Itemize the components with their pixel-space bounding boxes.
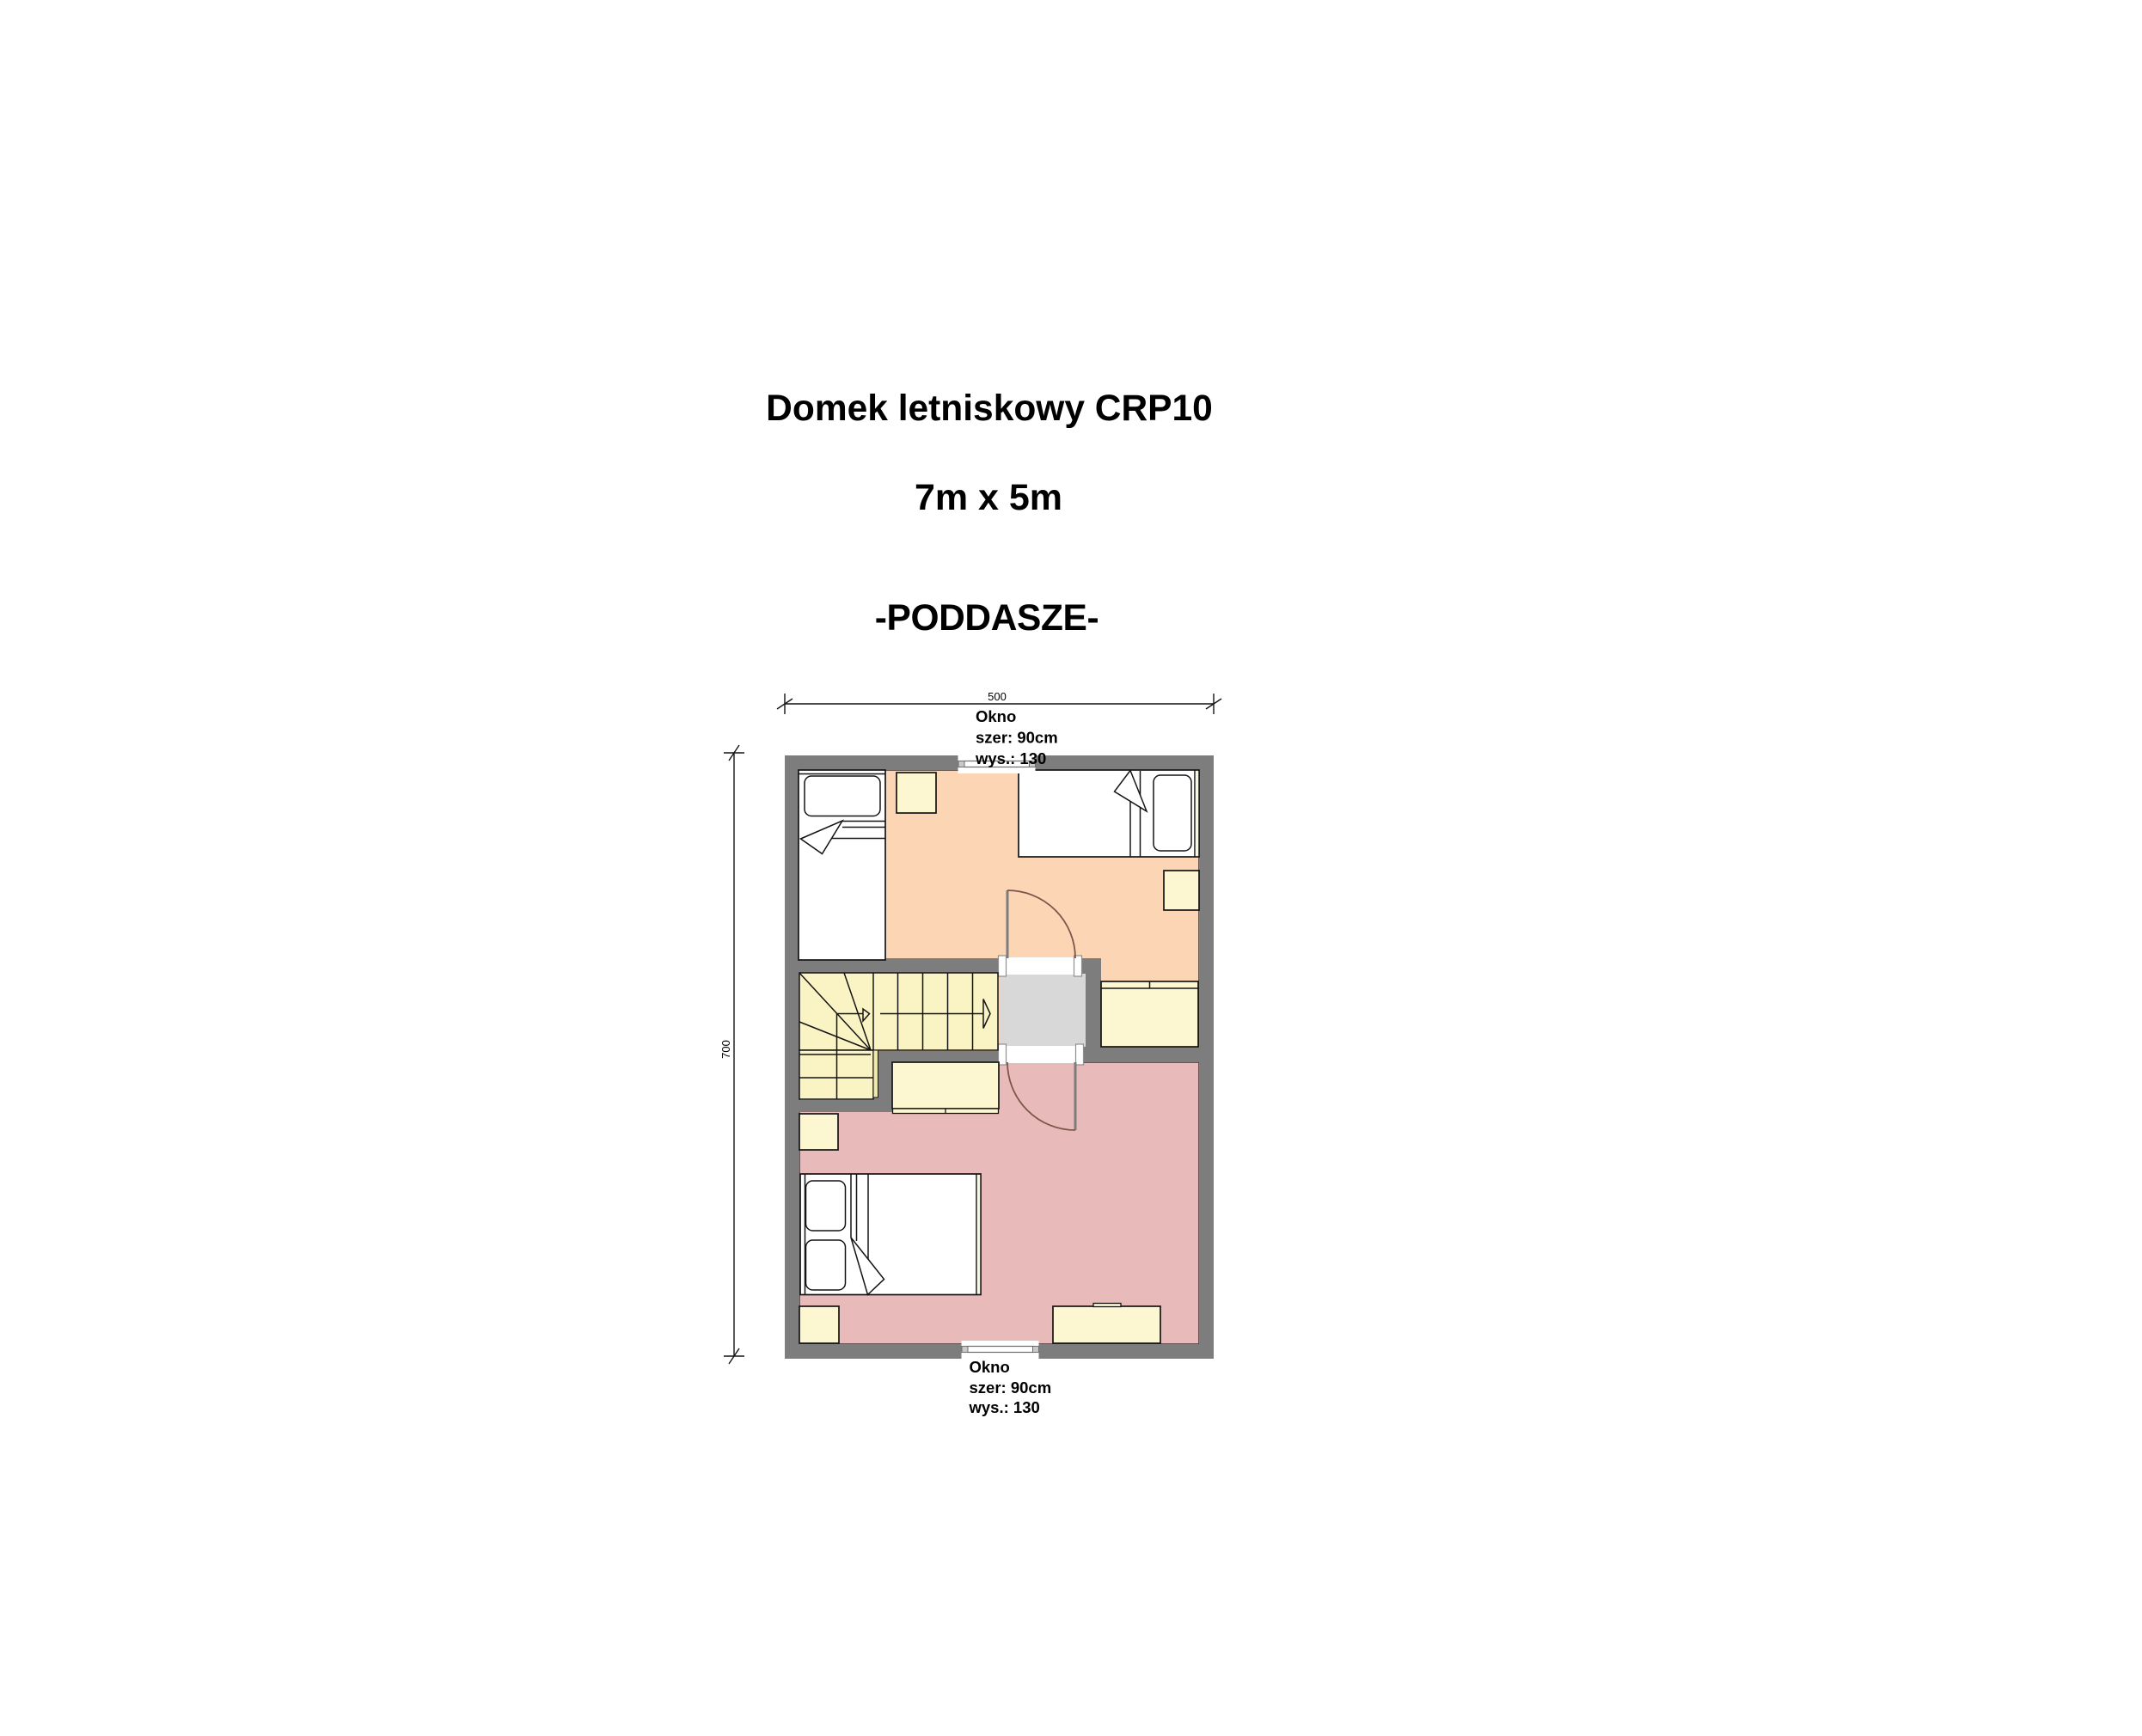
svg-text:-PODDASZE-: -PODDASZE-	[875, 598, 1099, 639]
svg-text:Domek letniskowy CRP10: Domek letniskowy CRP10	[766, 388, 1213, 429]
svg-text:wys.: 130: wys.: 130	[969, 1398, 1040, 1416]
svg-text:700: 700	[719, 1040, 732, 1059]
svg-text:Okno: Okno	[976, 707, 1016, 725]
svg-text:7m x 5m: 7m x 5m	[915, 477, 1062, 518]
svg-text:szer: 90cm: szer: 90cm	[970, 1378, 1052, 1397]
svg-text:500: 500	[988, 690, 1007, 703]
svg-text:szer: 90cm: szer: 90cm	[976, 729, 1058, 747]
svg-text:wys.: 130: wys.: 130	[975, 749, 1046, 767]
svg-text:Okno: Okno	[970, 1358, 1010, 1376]
